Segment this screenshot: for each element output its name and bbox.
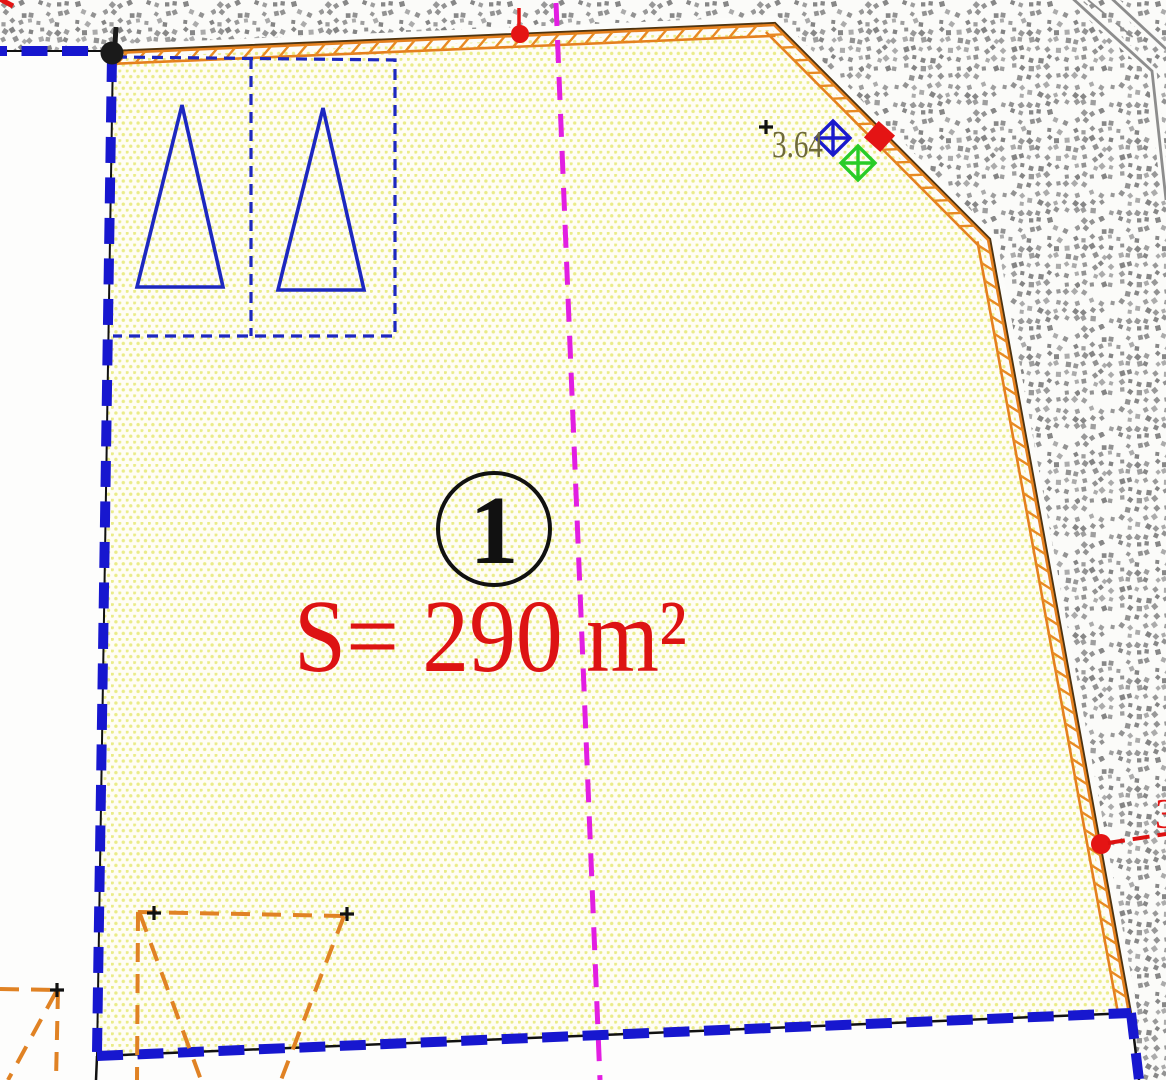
svg-text:3.64: 3.64 (772, 124, 823, 166)
svg-text:1: 1 (470, 477, 519, 585)
svg-text:3: 3 (1155, 792, 1166, 838)
svg-text:S= 290 m²: S= 290 m² (294, 579, 687, 694)
